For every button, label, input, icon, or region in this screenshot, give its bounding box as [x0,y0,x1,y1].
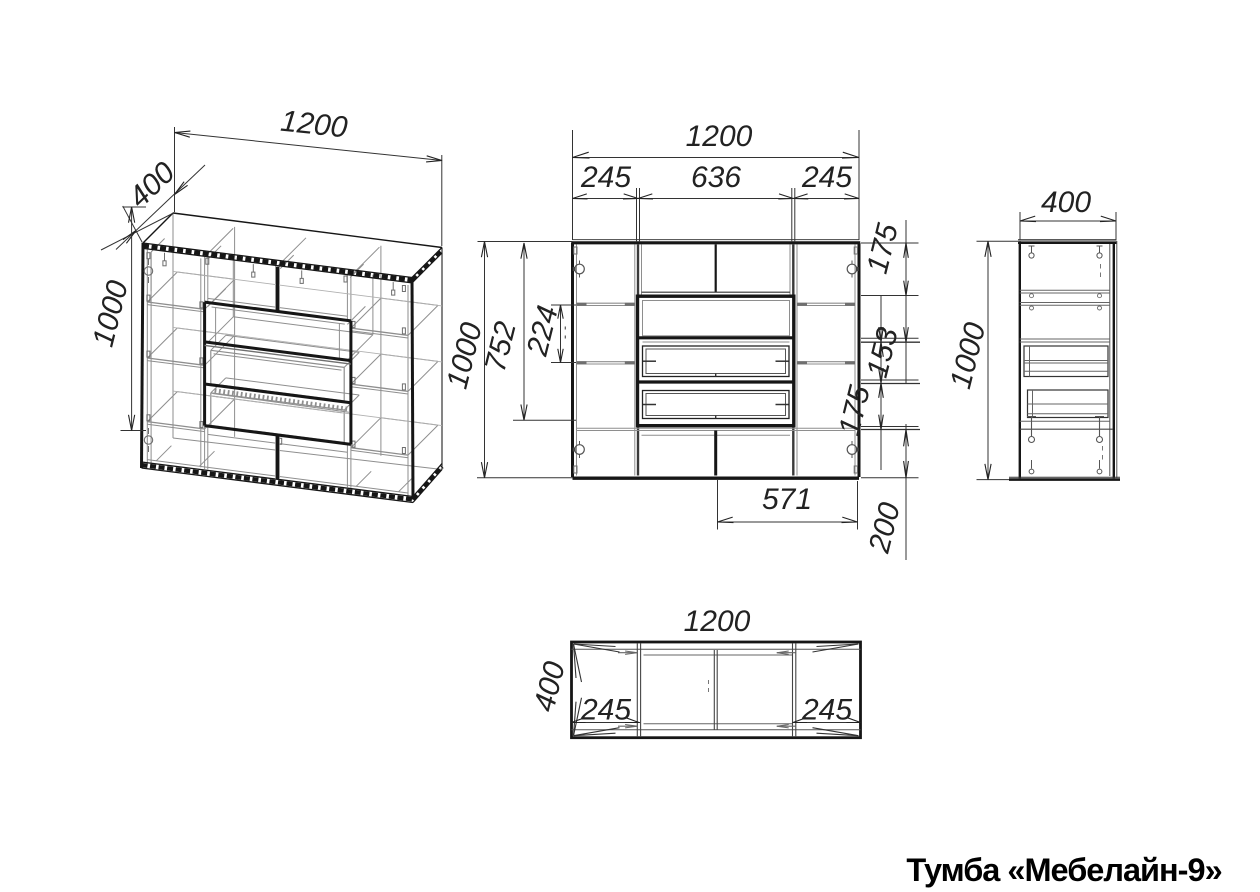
svg-text:245: 245 [580,694,631,727]
svg-text:400: 400 [1041,186,1091,219]
svg-text:245: 245 [801,161,852,194]
svg-text:1200: 1200 [684,605,751,638]
svg-text:Тумба «Мебелайн-9»: Тумба «Мебелайн-9» [906,852,1221,888]
svg-text:636: 636 [691,161,741,194]
svg-text:245: 245 [580,161,631,194]
svg-text:245: 245 [801,694,852,727]
svg-text:1200: 1200 [279,105,349,145]
svg-text:571: 571 [762,483,812,516]
svg-text:1200: 1200 [686,120,753,153]
